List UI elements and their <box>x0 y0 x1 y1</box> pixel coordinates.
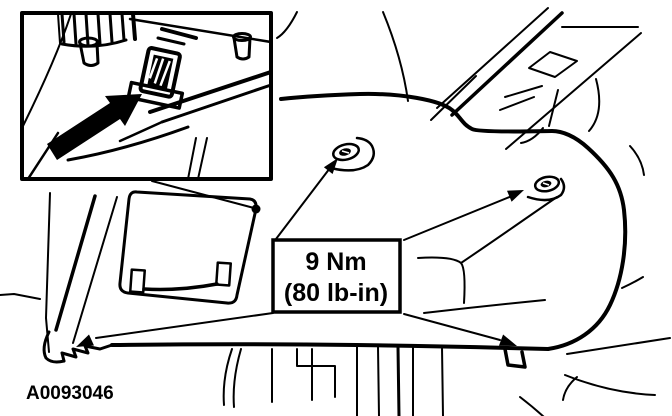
figure-id-label: A0093046 <box>26 383 114 404</box>
belt-slot-icon <box>529 52 577 77</box>
panel-outline-bottom <box>112 344 548 349</box>
pocket-lip <box>144 284 217 289</box>
inset-edge-highlight-2 <box>158 38 184 44</box>
callout-arrow-lower-right <box>404 314 517 346</box>
callout-arrow-lower-left <box>76 313 273 347</box>
trim-panel-torque-diagram: 9 Nm (80 lb-in) A0093046 <box>0 0 672 416</box>
diagram-canvas: 9 Nm (80 lb-in) A0093046 <box>0 0 672 416</box>
torque-value-imperial: (80 lb-in) <box>284 279 388 307</box>
torque-callout-box: 9 Nm (80 lb-in) <box>273 240 400 312</box>
inset-detail-box <box>20 13 271 179</box>
callout-arrow-upper-left <box>276 158 338 239</box>
pillar-structure <box>431 8 641 149</box>
screw-hole-icon <box>331 138 374 170</box>
panel-pocket-opening <box>120 192 256 303</box>
left-pillar-lines <box>0 193 117 352</box>
bottom-right-hook-icon <box>505 349 525 367</box>
background-body-lines <box>0 8 670 416</box>
screw-hole-icon-2 <box>528 175 564 200</box>
lower-body-lines <box>224 347 443 416</box>
inset-pillar-lines <box>188 138 207 179</box>
inset-edge-highlight <box>162 29 196 38</box>
panel-sculpt-lines <box>418 197 557 313</box>
pocket-slot-icon-2 <box>216 263 231 286</box>
inset-contents <box>20 14 271 179</box>
torque-value-metric: 9 Nm <box>305 248 366 276</box>
detail-pointer-arrow-icon <box>47 94 142 160</box>
